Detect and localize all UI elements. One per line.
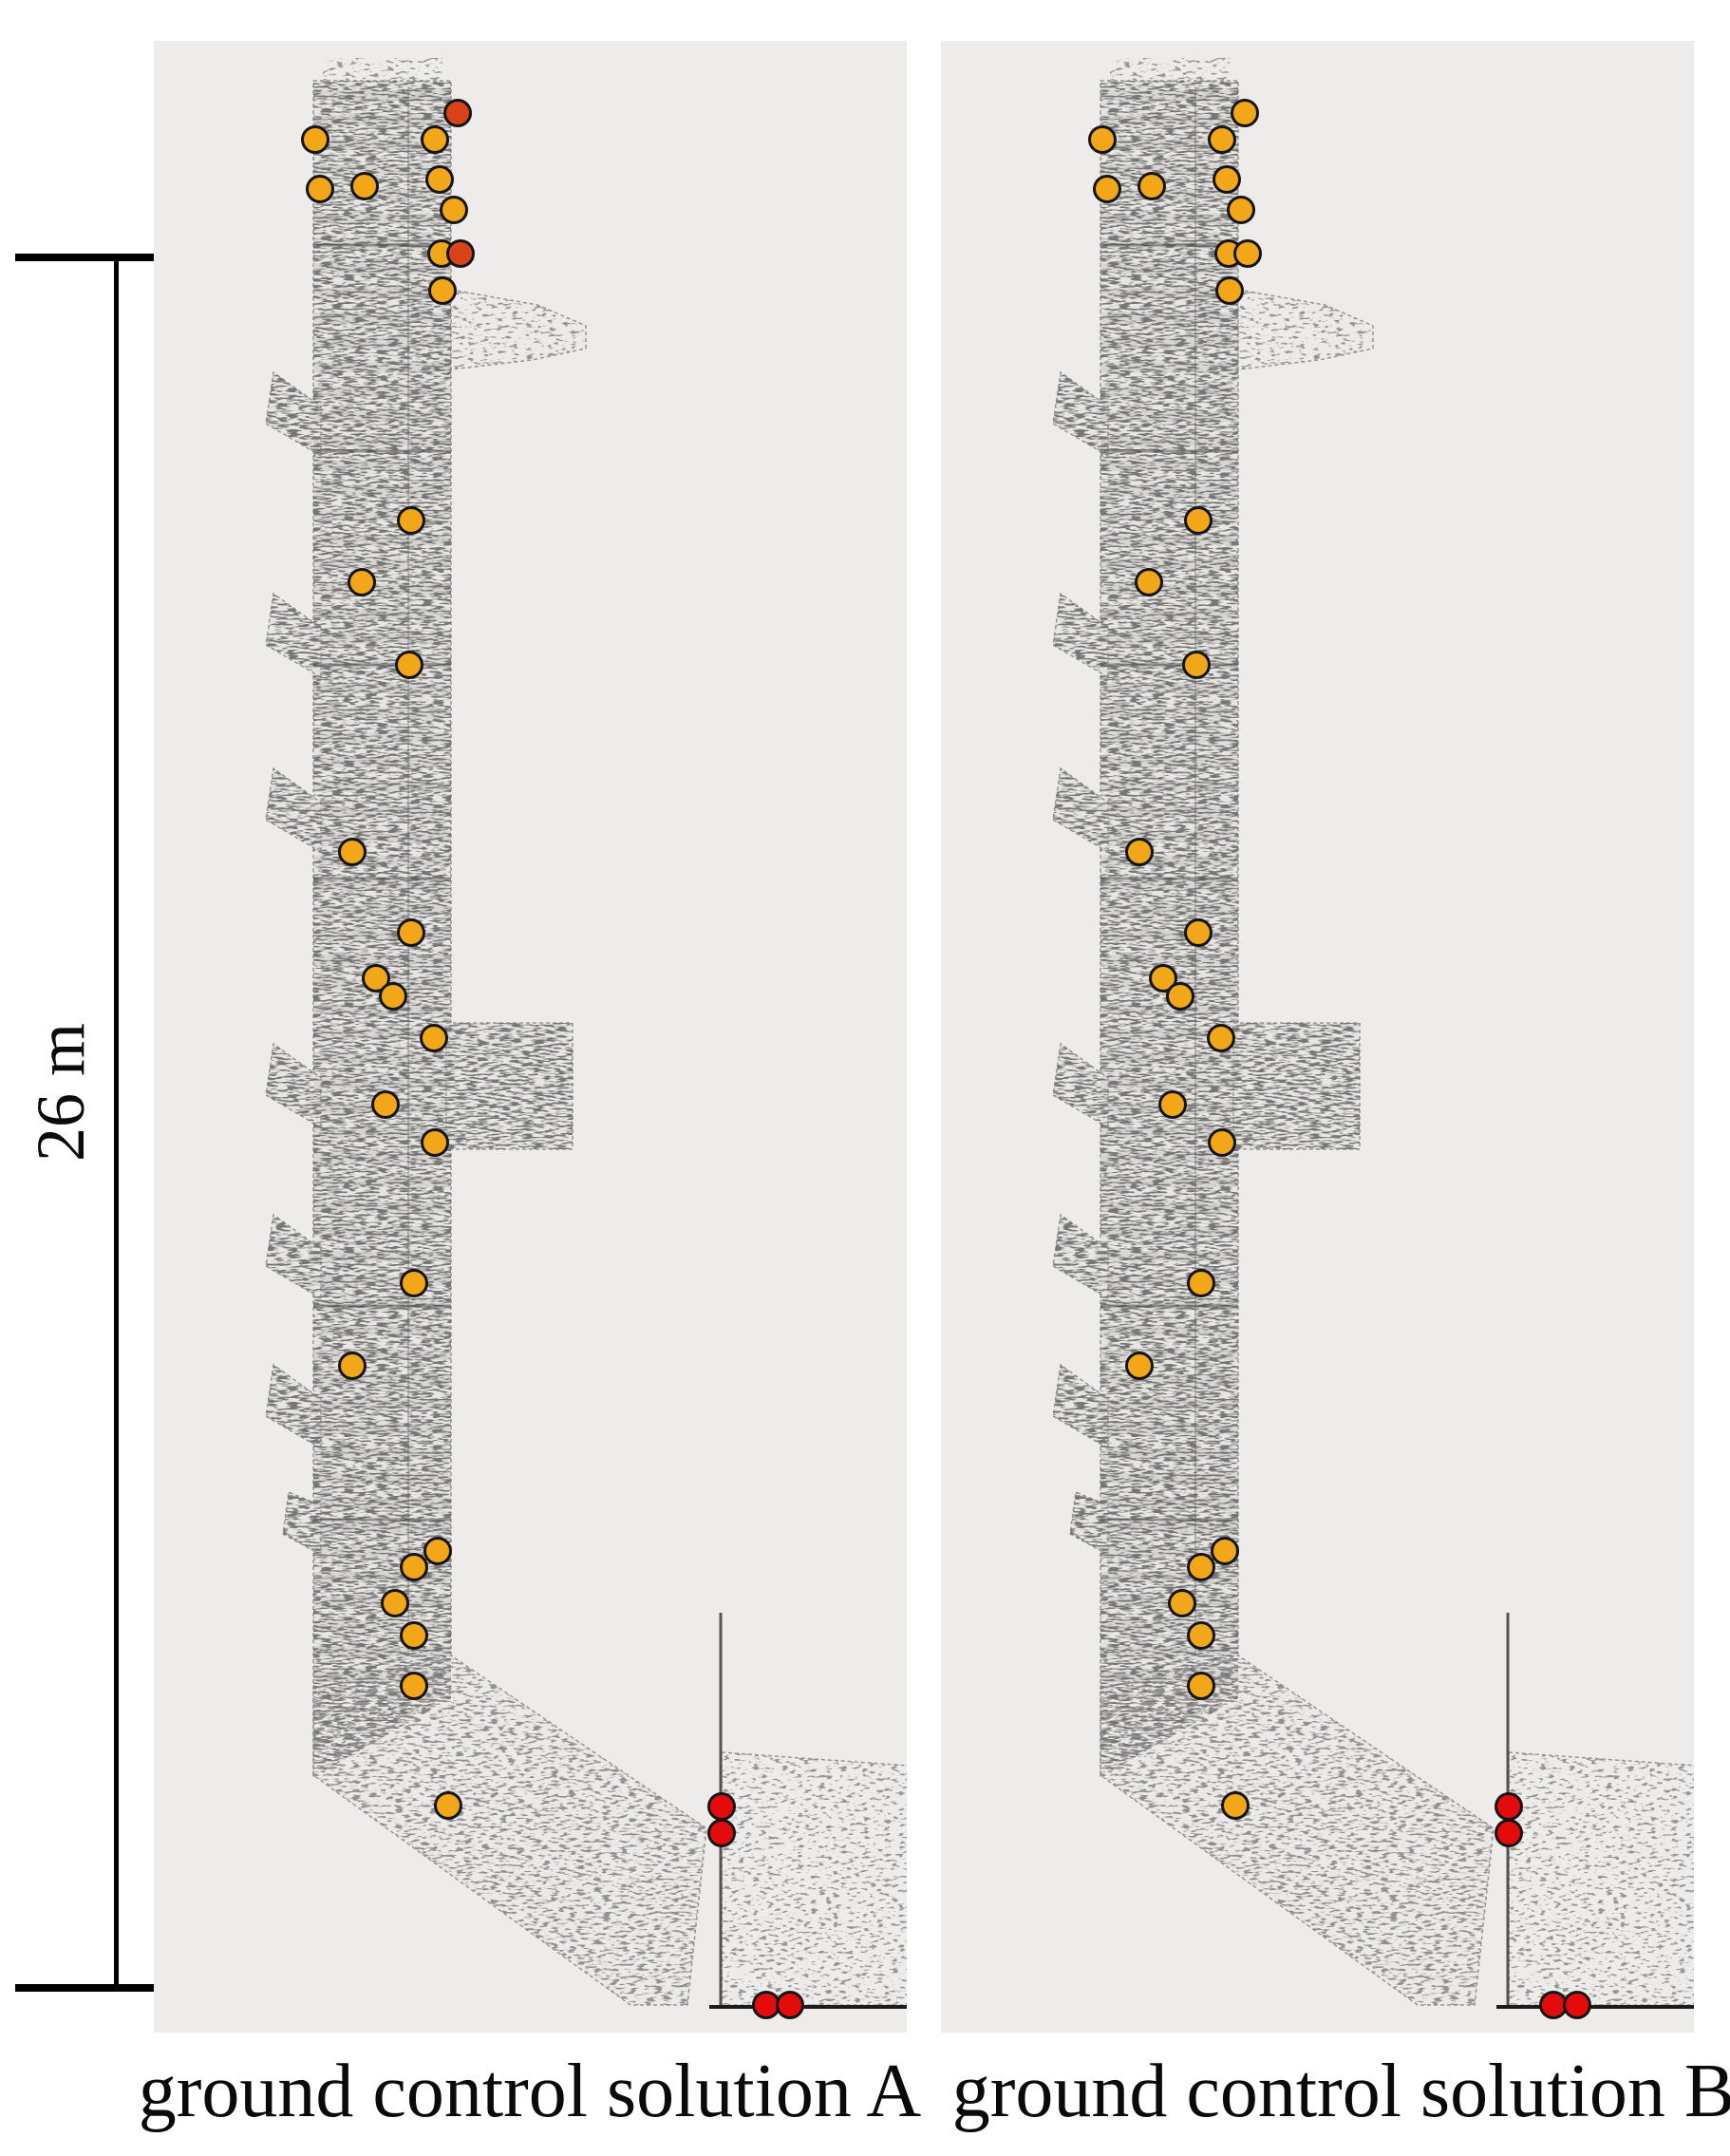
marker-orange	[1127, 1353, 1153, 1379]
marker-orange	[1217, 278, 1243, 304]
marker-orange	[1213, 1539, 1238, 1564]
marker-orange	[425, 1539, 451, 1564]
marker-orange	[1186, 920, 1212, 946]
marker-orange	[373, 1092, 399, 1118]
marker-orange	[1139, 174, 1165, 199]
marker-orange	[399, 508, 424, 534]
marker-orange	[383, 1591, 408, 1617]
marker-orange	[1189, 1271, 1214, 1296]
marker-orange	[402, 1555, 427, 1580]
marker-orange	[427, 167, 453, 193]
marker-red	[1496, 1794, 1522, 1820]
point-cloud-panel-b	[941, 41, 1694, 2033]
marker-orange	[422, 1026, 447, 1051]
marker-orange	[436, 1793, 461, 1819]
scale-bar-line	[114, 257, 119, 1988]
marker-orange	[1223, 1793, 1249, 1819]
marker-red	[709, 1794, 735, 1820]
marker-orange	[399, 920, 424, 946]
marker-orange	[308, 177, 333, 202]
marker-orange	[1209, 1026, 1234, 1051]
marker-orange	[340, 1353, 366, 1379]
marker-orange	[1095, 177, 1120, 202]
marker-red	[1565, 1993, 1590, 2018]
marker-orange	[430, 278, 456, 304]
marker-orange	[1229, 198, 1254, 223]
marker-orange	[442, 198, 467, 223]
marker-orange	[381, 984, 406, 1010]
marker-orange	[402, 1271, 427, 1296]
marker-orange	[1160, 1092, 1186, 1118]
marker-red	[754, 1993, 780, 2018]
marker-orange	[1168, 984, 1194, 1010]
marker-red	[709, 1821, 735, 1846]
marker-orange	[402, 1674, 427, 1699]
point-cloud-panel-a	[154, 41, 907, 2033]
marker-orange	[1210, 1130, 1235, 1156]
marker-orange	[1189, 1674, 1214, 1699]
point-cloud-tower-a	[154, 41, 907, 2033]
marker-orange	[1090, 127, 1116, 153]
marker-red	[1541, 1993, 1567, 2018]
point-cloud-tower-b	[941, 41, 1694, 2033]
marker-orange	[423, 127, 448, 153]
marker-redorange	[445, 101, 471, 126]
marker-orange	[352, 174, 378, 199]
marker-orange	[1210, 127, 1235, 153]
marker-orange	[1189, 1623, 1214, 1649]
marker-orange	[1137, 570, 1162, 596]
marker-redorange	[448, 241, 474, 267]
marker-orange	[397, 652, 423, 678]
marker-red	[778, 1993, 803, 2018]
marker-orange	[423, 1130, 448, 1156]
marker-orange	[1232, 101, 1258, 126]
figure: 26 m ground control solution A ground co…	[0, 0, 1730, 2156]
marker-orange	[1184, 652, 1210, 678]
marker-orange	[1127, 840, 1153, 865]
scale-bar-label: 26 m	[27, 997, 95, 1187]
marker-orange	[402, 1623, 427, 1649]
marker-orange	[1235, 241, 1261, 267]
caption-solution-a: ground control solution A	[112, 2044, 948, 2139]
marker-orange	[349, 570, 375, 596]
marker-orange	[1186, 508, 1212, 534]
caption-solution-b: ground control solution B	[926, 2044, 1730, 2139]
marker-orange	[1189, 1555, 1214, 1580]
marker-orange	[303, 127, 329, 153]
marker-red	[1496, 1821, 1522, 1846]
marker-orange	[1214, 167, 1240, 193]
marker-orange	[1170, 1591, 1195, 1617]
marker-orange	[340, 840, 366, 865]
